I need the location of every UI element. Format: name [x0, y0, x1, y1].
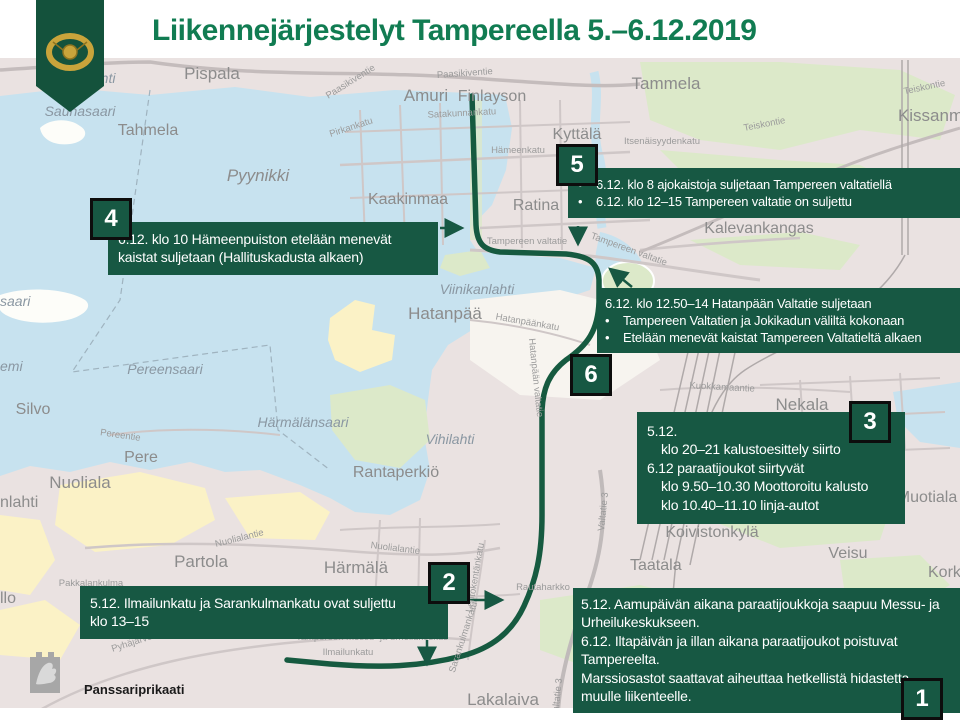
- bullet-icon: •: [605, 312, 623, 329]
- callout-5-item: • 6.12. klo 8 ajokaistoja suljetaan Tamp…: [578, 176, 950, 193]
- callout-box-5: • 6.12. klo 8 ajokaistoja suljetaan Tamp…: [568, 168, 960, 218]
- callout-box-4: 6.12. klo 10 Hämeenpuiston etelään menev…: [108, 222, 438, 275]
- bullet-icon: •: [578, 193, 596, 210]
- page-title: Liikennejärjestelyt Tampereella 5.–6.12.…: [152, 14, 942, 48]
- callout-5-item: • 6.12. klo 12–15 Tampereen valtatie on …: [578, 193, 950, 210]
- map-label-itsenaisyydenkatu: Itsenäisyydenkatu: [624, 136, 700, 147]
- map-label-viinikanlahti: Viinikanlahti: [440, 281, 515, 297]
- map-label-ratina: Ratina: [513, 197, 559, 214]
- map-label-pere: Pere: [124, 449, 158, 466]
- map-label-vihilahti: Vihilahti: [426, 431, 476, 447]
- map-label-tahmela: Tahmela: [118, 122, 179, 139]
- map-label-emi-partial: emi: [0, 358, 23, 374]
- number-badge-4: 4: [90, 198, 132, 240]
- callout-1-paragraph: Marssiosastot saattavat aiheuttaa hetkel…: [581, 669, 952, 706]
- map-label-pyynikki: Pyynikki: [227, 166, 291, 185]
- callout-6-heading: 6.12. klo 12.50–14 Hatanpään Valtatie su…: [605, 295, 956, 312]
- map-label-kalevankangas: Kalevankangas: [704, 220, 813, 237]
- map-label-finlayson: Finlayson: [458, 88, 526, 105]
- bullet-icon: •: [605, 329, 623, 346]
- map-label-rautaharkko: Rautaharkko: [516, 582, 570, 593]
- map-label-tammela: Tammela: [632, 74, 702, 93]
- callout-1-paragraph: 6.12. Iltapäivän ja illan aikana paraati…: [581, 632, 952, 669]
- number-badge-2: 2: [428, 562, 470, 604]
- callout-6-item: • Tampereen Valtatien ja Jokikadun välil…: [605, 312, 956, 329]
- slide-canvas: { "title": "Liikennejärjestelyt Tamperee…: [0, 0, 960, 720]
- map-label-kissanmaa: Kissanmaa: [898, 106, 960, 125]
- map-label-hameenkatu: Hämeenkatu: [491, 145, 545, 156]
- map-label-muotiala: Muotiala: [897, 489, 958, 506]
- callout-box-2: 5.12. Ilmailunkatu ja Sarankulmankatu ov…: [80, 586, 448, 639]
- callout-2-line: 5.12. Ilmailunkatu ja Sarankulmankatu ov…: [90, 594, 438, 612]
- map-label-koivistonkyla: Koivistonkylä: [665, 524, 758, 541]
- callout-3-line: klo 9.50–10.30 Moottoroitu kalusto: [647, 477, 895, 495]
- map-label-pereensaari: Pereensaari: [127, 361, 203, 377]
- callout-6-item-text: Etelään menevät kaistat Tampereen Valtat…: [623, 329, 921, 346]
- map-label-rantaperkio: Rantaperkiö: [353, 464, 439, 481]
- callout-6-item-text: Tampereen Valtatien ja Jokikadun väliltä…: [623, 312, 904, 329]
- map-label-amuri: Amuri: [404, 86, 448, 105]
- map-label-harmala: Härmälä: [324, 558, 389, 577]
- callout-6-item: • Etelään menevät kaistat Tampereen Valt…: [605, 329, 956, 346]
- map-label-nuoliala: Nuoliala: [49, 473, 111, 492]
- map-label-veisu: Veisu: [828, 545, 867, 562]
- callout-5-item-text: 6.12. klo 12–15 Tampereen valtatie on su…: [596, 193, 852, 210]
- callout-3-line: 6.12 paraatijoukot siirtyvät: [647, 459, 895, 477]
- panssariprikaati-pennant-logo: [33, 0, 107, 120]
- map-label-llo-partial: llo: [0, 590, 16, 607]
- map-label-tampereen-valtatie: Tampereen valtatie: [487, 236, 567, 247]
- callout-1-paragraph: 5.12. Aamupäivän aikana paraatijoukkoja …: [581, 595, 952, 632]
- callout-4-text: 6.12. klo 10 Hämeenpuiston etelään menev…: [118, 230, 428, 267]
- callout-3-line: klo 10.40–11.10 linja-autot: [647, 496, 895, 514]
- map-label-kaakinmaa: Kaakinmaa: [368, 191, 448, 208]
- map-label-hatanpaa: Hatanpää: [408, 304, 482, 323]
- lion-emblem-icon: [28, 652, 62, 699]
- map-label-kyttala: Kyttälä: [553, 126, 602, 143]
- map-label-ilmailunkatu: Ilmailunkatu: [323, 647, 374, 658]
- callout-box-6: 6.12. klo 12.50–14 Hatanpään Valtatie su…: [597, 288, 960, 353]
- callout-5-item-text: 6.12. klo 8 ajokaistoja suljetaan Tamper…: [596, 176, 892, 193]
- map-label-nlahti-partial: nlahti: [0, 494, 38, 511]
- number-badge-3: 3: [849, 401, 891, 443]
- brand-unit-label: Panssariprikaati: [84, 682, 184, 697]
- map-label-pispala: Pispala: [184, 64, 240, 83]
- callout-2-line: klo 13–15: [90, 612, 438, 630]
- map-label-saari-partial: saari: [0, 293, 31, 309]
- map-label-lakalaiva: Lakalaiva: [467, 690, 539, 709]
- number-badge-1: 1: [901, 678, 943, 720]
- callout-3-line: klo 20–21 kalustoesittely siirto: [647, 440, 895, 458]
- map-label-harmalansaari: Härmälänsaari: [257, 414, 349, 430]
- number-badge-6: 6: [570, 354, 612, 396]
- map-label-partola: Partola: [174, 552, 228, 571]
- number-badge-5: 5: [556, 144, 598, 186]
- map-label-taatala: Taatala: [630, 557, 682, 574]
- map-label-silvo: Silvo: [16, 401, 51, 418]
- map-label-korkinmaki: Korkinmäki: [928, 564, 960, 581]
